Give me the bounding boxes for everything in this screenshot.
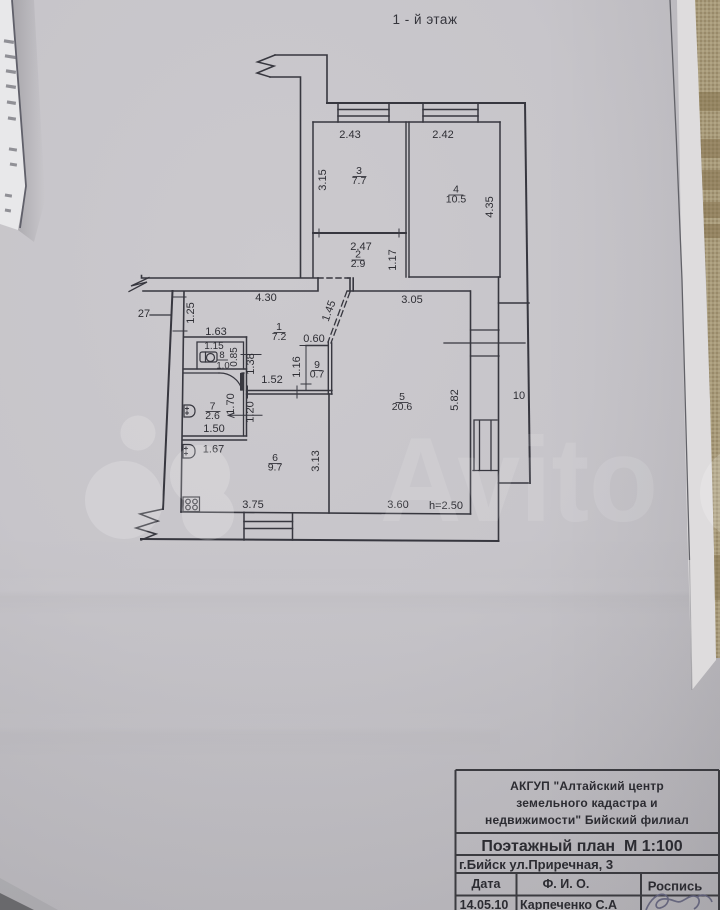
svg-text:г.Бийск ул.Приречная, 3: г.Бийск ул.Приречная, 3 [459,857,613,872]
svg-text:недвижимости" Бийский филиал: недвижимости" Бийский филиал [485,813,689,827]
svg-text:14.05.10: 14.05.10 [460,898,509,910]
svg-text:Карпеченко С.А: Карпеченко С.А [520,898,617,910]
svg-text:Поэтажный план М 1:100: Поэтажный план М 1:100 [481,838,682,855]
svg-text:Дата: Дата [472,877,502,891]
svg-text:земельного кадастра и: земельного кадастра и [516,796,657,810]
svg-text:Роспись: Роспись [648,879,702,894]
svg-text:Ф. И. О.: Ф. И. О. [543,877,590,891]
svg-text:АКГУП "Алтайский центр: АКГУП "Алтайский центр [510,779,664,793]
